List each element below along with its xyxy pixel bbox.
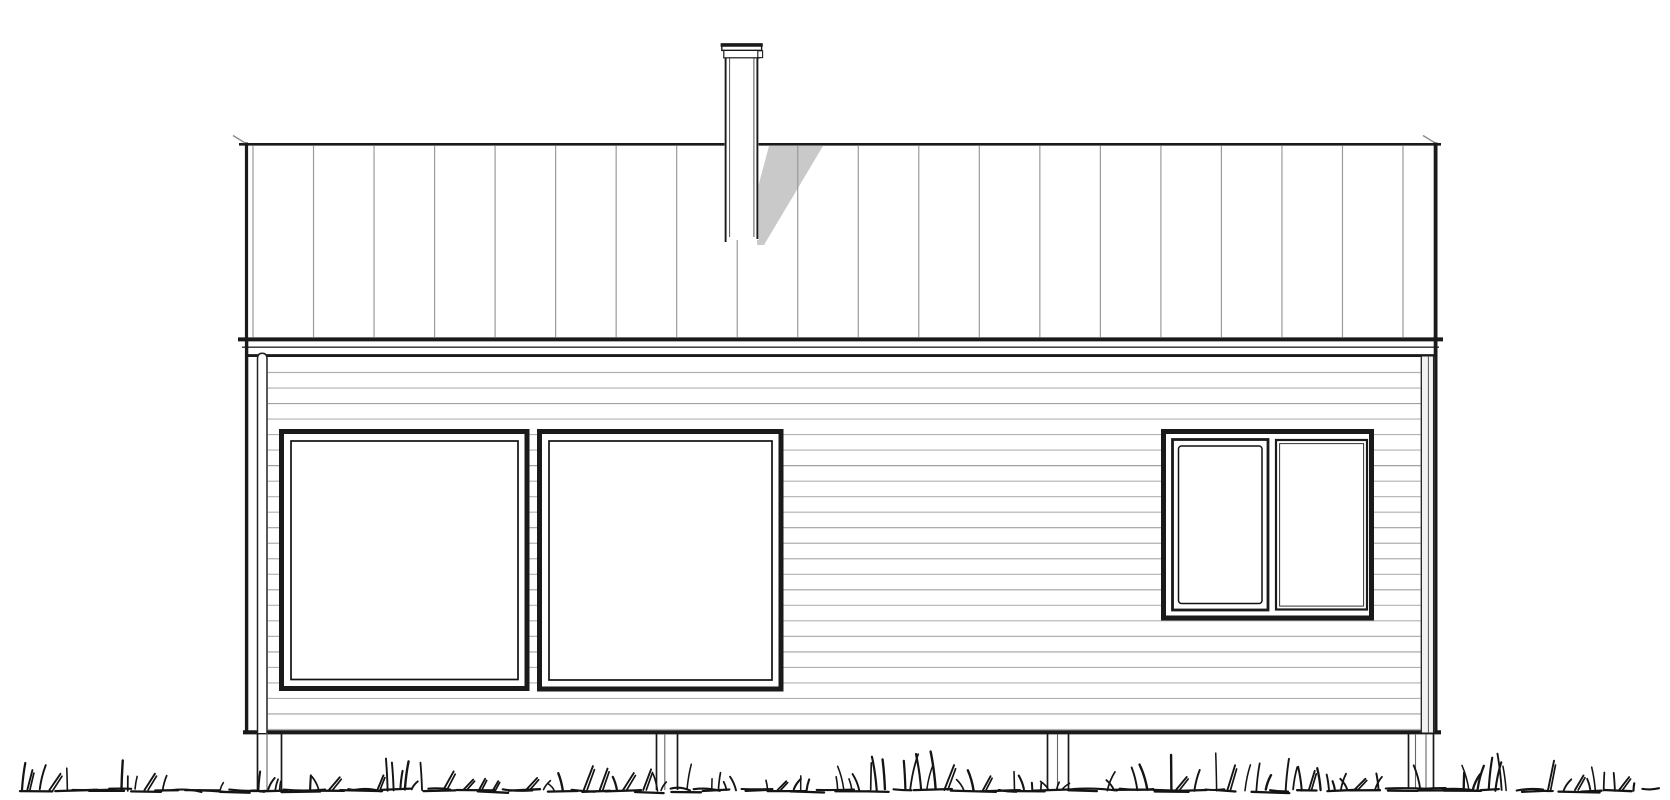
chimney-cap-collar xyxy=(724,50,760,57)
elevation-drawing xyxy=(0,0,1670,800)
window-right-sash-left xyxy=(1173,440,1269,611)
window-large-left-frame xyxy=(282,432,528,689)
corner-board-left-outline xyxy=(258,353,268,733)
elevation-page xyxy=(0,0,1670,800)
chimney xyxy=(721,44,763,242)
window-right-pane-fixed xyxy=(1276,440,1367,610)
grass-ground-line xyxy=(20,752,1659,794)
roof xyxy=(233,136,1441,341)
roof-corner-chamfer-left xyxy=(233,136,247,144)
foundation-post-3 xyxy=(1048,734,1069,790)
foundation-post-4 xyxy=(1409,734,1434,788)
window-large-center xyxy=(540,432,782,690)
foundation-post-2 xyxy=(657,734,678,790)
window-large-center-frame xyxy=(540,432,782,690)
corner-board-right xyxy=(1421,356,1434,733)
corner-board-right-face xyxy=(1421,357,1434,733)
eave-fascia xyxy=(238,339,1443,355)
window-large-left xyxy=(282,432,528,689)
corner-board-left xyxy=(258,353,268,733)
chimney-cap-notch xyxy=(758,51,763,58)
roof-face xyxy=(246,144,1436,339)
window-right xyxy=(1164,432,1372,619)
